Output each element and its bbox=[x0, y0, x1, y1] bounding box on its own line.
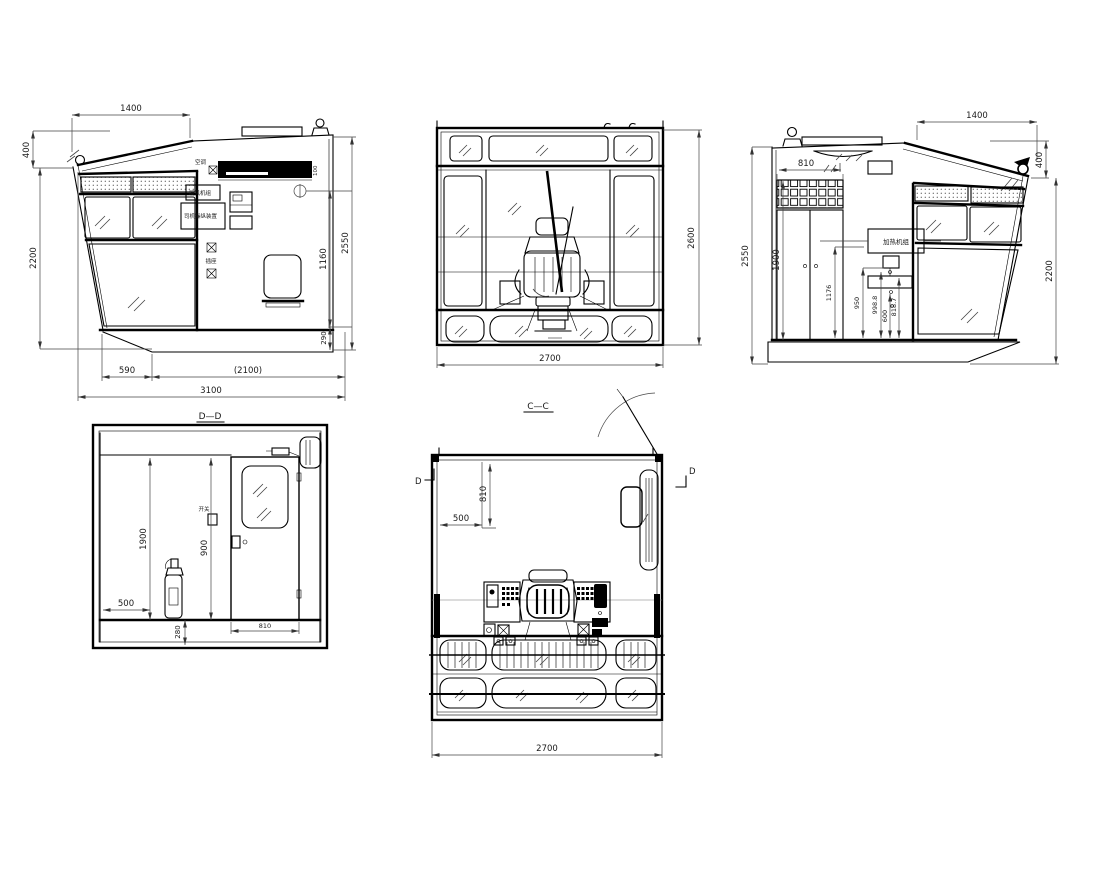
lower-window bbox=[89, 244, 195, 326]
glass-hatch bbox=[95, 216, 167, 229]
side-windows bbox=[79, 171, 197, 326]
hinge bbox=[1018, 164, 1028, 174]
top-window-band bbox=[437, 136, 663, 170]
dim-label: 810 bbox=[798, 159, 814, 169]
dim-label: 998.8 bbox=[871, 296, 879, 315]
cab-body bbox=[67, 119, 333, 352]
dim-label: 2550 bbox=[341, 232, 351, 254]
control-monitor bbox=[230, 192, 252, 229]
fire-extinguisher bbox=[165, 559, 183, 618]
cad-drawing: 空调 100 暖风机组 司机操纵装置 插座 1400 400 2200 bbox=[0, 0, 1100, 880]
dim-label: 590 bbox=[119, 366, 135, 376]
dim-label: 290 bbox=[320, 331, 328, 344]
button-grid bbox=[502, 587, 519, 606]
dim-label: 818.7 bbox=[890, 298, 898, 317]
equipment-label: 空调 bbox=[195, 158, 207, 166]
section-title: C—C bbox=[527, 402, 549, 412]
dim-label: 400 bbox=[1035, 152, 1045, 168]
section-marker-label: D bbox=[415, 477, 422, 487]
equipment-label: 加热机组 bbox=[883, 237, 910, 246]
dim-label: 1400 bbox=[120, 104, 142, 114]
operator-seat-side bbox=[263, 255, 303, 307]
windshield bbox=[67, 141, 192, 171]
vent-mesh-band bbox=[81, 177, 131, 192]
console-box bbox=[584, 281, 604, 304]
dim-label: 1900 bbox=[772, 249, 782, 271]
vent-mesh-band bbox=[915, 186, 968, 201]
door-swing bbox=[598, 389, 657, 454]
section-marker-d-right: D bbox=[676, 467, 696, 487]
glass-hatch bbox=[128, 297, 145, 311]
vent-grille bbox=[777, 180, 843, 208]
door-closer bbox=[272, 448, 289, 455]
wall-cabinet-plan bbox=[621, 470, 658, 570]
wall-switch: 开关 bbox=[198, 505, 217, 525]
dim-label: 500 bbox=[453, 514, 469, 524]
lifting-lug bbox=[783, 128, 802, 147]
cab-outline bbox=[432, 455, 662, 720]
view-cab-left-side-elevation: 空调 100 暖风机组 司机操纵装置 插座 1400 400 2200 bbox=[22, 104, 356, 401]
mount-pads bbox=[494, 637, 598, 645]
callout-balloon bbox=[294, 184, 352, 198]
dim-label: 2200 bbox=[29, 247, 39, 269]
interior-equipment: 空调 100 暖风机组 司机操纵装置 插座 bbox=[181, 158, 352, 307]
side-window bbox=[970, 207, 1021, 242]
cab-outline bbox=[93, 425, 327, 648]
dim-label: 600 bbox=[881, 310, 889, 322]
side-window bbox=[85, 197, 130, 238]
dim-label: 500 bbox=[118, 599, 134, 609]
dim-label: 2700 bbox=[539, 354, 561, 364]
view-section-d-d: D—D 开关 1900 900 500 280 81 bbox=[93, 412, 327, 648]
dim-label: 1900 bbox=[139, 528, 149, 550]
section-marker-label: D bbox=[689, 467, 696, 477]
ceiling-unit bbox=[814, 151, 892, 174]
lower-window bbox=[918, 248, 1018, 334]
dim-label: 1160 bbox=[319, 248, 329, 270]
hinge bbox=[76, 156, 85, 165]
vent-mesh-band bbox=[971, 187, 1023, 203]
operator-seat-front bbox=[492, 171, 608, 338]
section-title: D—D bbox=[199, 412, 222, 422]
dim-label: 400 bbox=[22, 142, 32, 158]
dim-label: 810 bbox=[259, 622, 271, 630]
door-handle bbox=[232, 536, 240, 548]
dimensions: 1400 400 2200 2550 1160 290 590 (2100) 3… bbox=[22, 104, 356, 401]
dim-label: 100 bbox=[313, 165, 319, 176]
button-grid bbox=[577, 587, 594, 600]
dim-label: 2700 bbox=[536, 744, 558, 754]
equipment-label: 开关 bbox=[198, 505, 210, 513]
dimensions: 500 810 2700 bbox=[432, 462, 662, 758]
dim-label: 950 bbox=[853, 297, 861, 309]
dim-label: 280 bbox=[174, 625, 182, 638]
rear-locker bbox=[777, 180, 843, 340]
dimensions: 1900 900 500 280 810 bbox=[103, 458, 299, 645]
equipment-label: 暖风机组 bbox=[189, 189, 212, 197]
operator-station-plan bbox=[432, 570, 662, 645]
dim-label: 1400 bbox=[966, 111, 988, 121]
dim-label: 2600 bbox=[687, 227, 697, 249]
dim-label: 1176 bbox=[825, 285, 833, 302]
front-window-band-plan bbox=[429, 636, 665, 712]
dim-label: 900 bbox=[200, 540, 210, 556]
lifting-lug bbox=[312, 119, 329, 135]
dim-label: 810 bbox=[479, 486, 489, 502]
equipment-label: 插座 bbox=[205, 257, 217, 265]
view-plan-section-c-c: C—C D D bbox=[415, 389, 696, 758]
dim-label: 2550 bbox=[741, 245, 751, 267]
wall-ac-unit bbox=[300, 437, 321, 468]
cab-door bbox=[231, 448, 301, 620]
console-box bbox=[500, 281, 520, 304]
view-cab-front-elevation: 2600 2700 bbox=[437, 121, 702, 368]
roof-vent bbox=[242, 127, 302, 136]
seat-plan bbox=[519, 570, 577, 640]
door-window bbox=[242, 466, 288, 528]
dim-label: 3100 bbox=[200, 386, 222, 396]
dim-label: 2200 bbox=[1045, 260, 1055, 282]
dim-label: (2100) bbox=[234, 366, 262, 376]
base-skirt bbox=[768, 342, 1020, 362]
equipment-label: 司机操纵装置 bbox=[184, 212, 218, 220]
blueprint-page: 空调 100 暖风机组 司机操纵装置 插座 1400 400 2200 bbox=[0, 0, 1100, 880]
air-conditioner bbox=[218, 161, 312, 178]
view-cab-right-side-section: 加热机组 1400 400 2200 2550 810 1900 1176 95… bbox=[741, 111, 1059, 364]
